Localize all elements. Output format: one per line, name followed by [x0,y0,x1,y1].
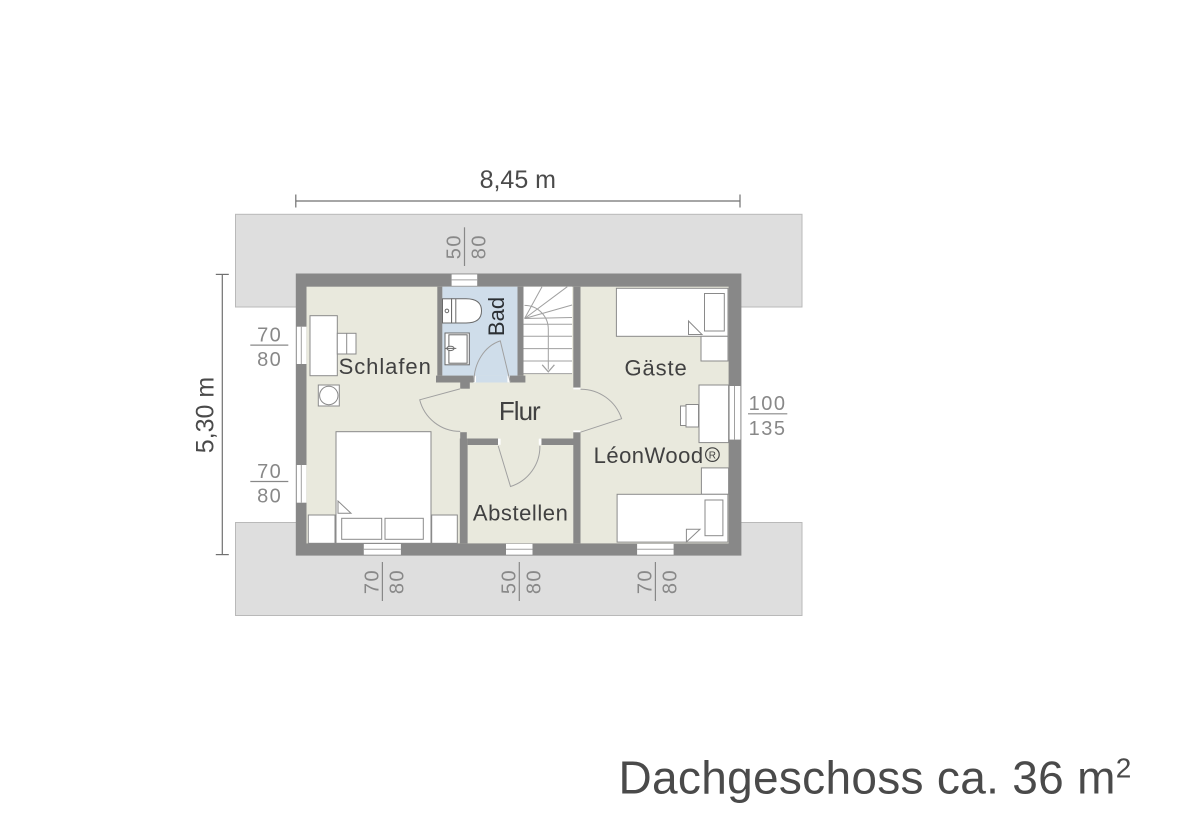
svg-text:Gäste: Gäste [624,356,687,381]
svg-text:R: R [709,450,716,461]
svg-text:70: 70 [362,569,384,594]
svg-text:80: 80 [257,486,282,508]
svg-text:Bad: Bad [484,297,509,336]
svg-text:5,30 m: 5,30 m [191,377,219,453]
svg-text:80: 80 [257,349,282,371]
svg-text:Schlafen: Schlafen [339,354,432,379]
svg-text:80: 80 [469,234,491,259]
svg-text:LéonWood: LéonWood [594,443,704,468]
svg-text:Flur: Flur [499,396,541,426]
svg-text:100: 100 [749,393,787,415]
svg-text:80: 80 [523,569,545,594]
svg-text:50: 50 [499,569,521,594]
svg-text:80: 80 [386,569,408,594]
svg-text:8,45 m: 8,45 m [480,166,556,194]
svg-text:70: 70 [635,569,657,594]
svg-text:50: 50 [444,234,466,259]
svg-text:80: 80 [659,569,681,594]
svg-text:Abstellen: Abstellen [473,501,568,526]
svg-text:Dachgeschoss ca. 36 m2: Dachgeschoss ca. 36 m2 [619,752,1132,804]
svg-text:70: 70 [257,461,282,483]
svg-text:135: 135 [749,418,787,440]
svg-text:70: 70 [257,324,282,346]
